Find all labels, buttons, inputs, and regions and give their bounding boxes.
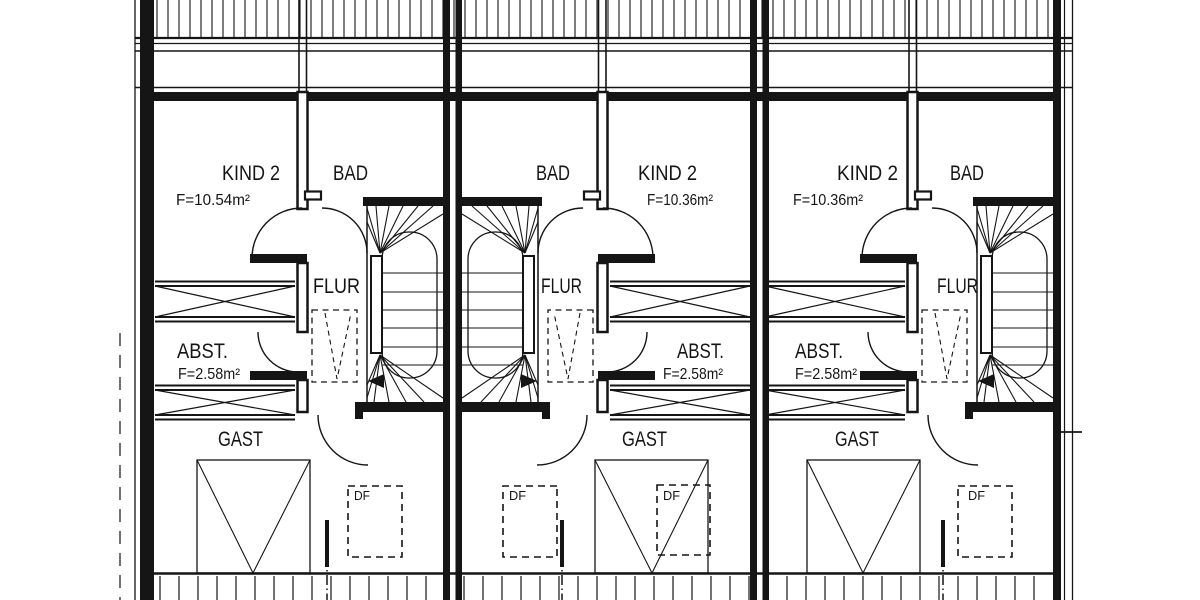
unit-1-geometry [155,0,443,573]
area-label-kind-unit3: F=10.36m² [793,192,863,209]
right-exterior-wall [1053,0,1061,600]
room-label-flur-unit1: FLUR [313,275,360,298]
party-wall-2 [750,0,769,600]
area-label-kind-unit2: F=10.36m² [647,192,713,209]
df-label-unit2-a: DF [509,489,526,503]
room-label-bad-unit2: BAD [536,162,570,185]
top-eave-lines [135,38,1073,88]
area-label-abst-unit3: F=2.58m² [795,366,857,383]
df-label-unit2-b: DF [663,489,680,503]
room-label-gast-unit1: GAST [218,428,263,451]
room-label-flur-unit3: FLUR [937,275,978,298]
room-label-abst-unit3: ABST. [795,340,843,363]
room-label-flur-unit2: FLUR [541,275,582,298]
room-label-abst-unit1: ABST. [177,340,228,363]
room-label-kind-unit1: KIND 2 [222,162,280,185]
room-label-kind-unit2: KIND 2 [638,162,697,185]
unit-3-geometry [765,0,1053,573]
party-wall-1 [443,0,462,600]
area-label-abst-unit2: F=2.58m² [663,366,723,383]
df-label-unit3: DF [968,489,985,503]
unit-2-geometry [462,0,750,573]
df-label-unit1: DF [354,489,370,503]
top-roof-hatch-band [146,0,1059,37]
left-exterior-wall [140,0,154,600]
bottom-roof-hatch-band [160,576,1034,600]
room-label-gast-unit2: GAST [622,428,667,451]
floor-plan-canvas: KIND 2 F=10.54m² BAD FLUR ABST. F=2.58m²… [0,0,1200,600]
room-label-abst-unit2: ABST. [677,340,724,363]
area-label-abst-unit1: F=2.58m² [178,366,240,383]
floor-plan-svg: KIND 2 F=10.54m² BAD FLUR ABST. F=2.58m²… [0,0,1200,600]
area-label-kind-unit1: F=10.54m² [176,192,250,209]
room-label-bad-unit3: BAD [950,162,984,185]
room-label-bad-unit1: BAD [333,162,368,185]
room-label-gast-unit3: GAST [835,428,879,451]
room-label-kind-unit3: KIND 2 [837,162,898,185]
